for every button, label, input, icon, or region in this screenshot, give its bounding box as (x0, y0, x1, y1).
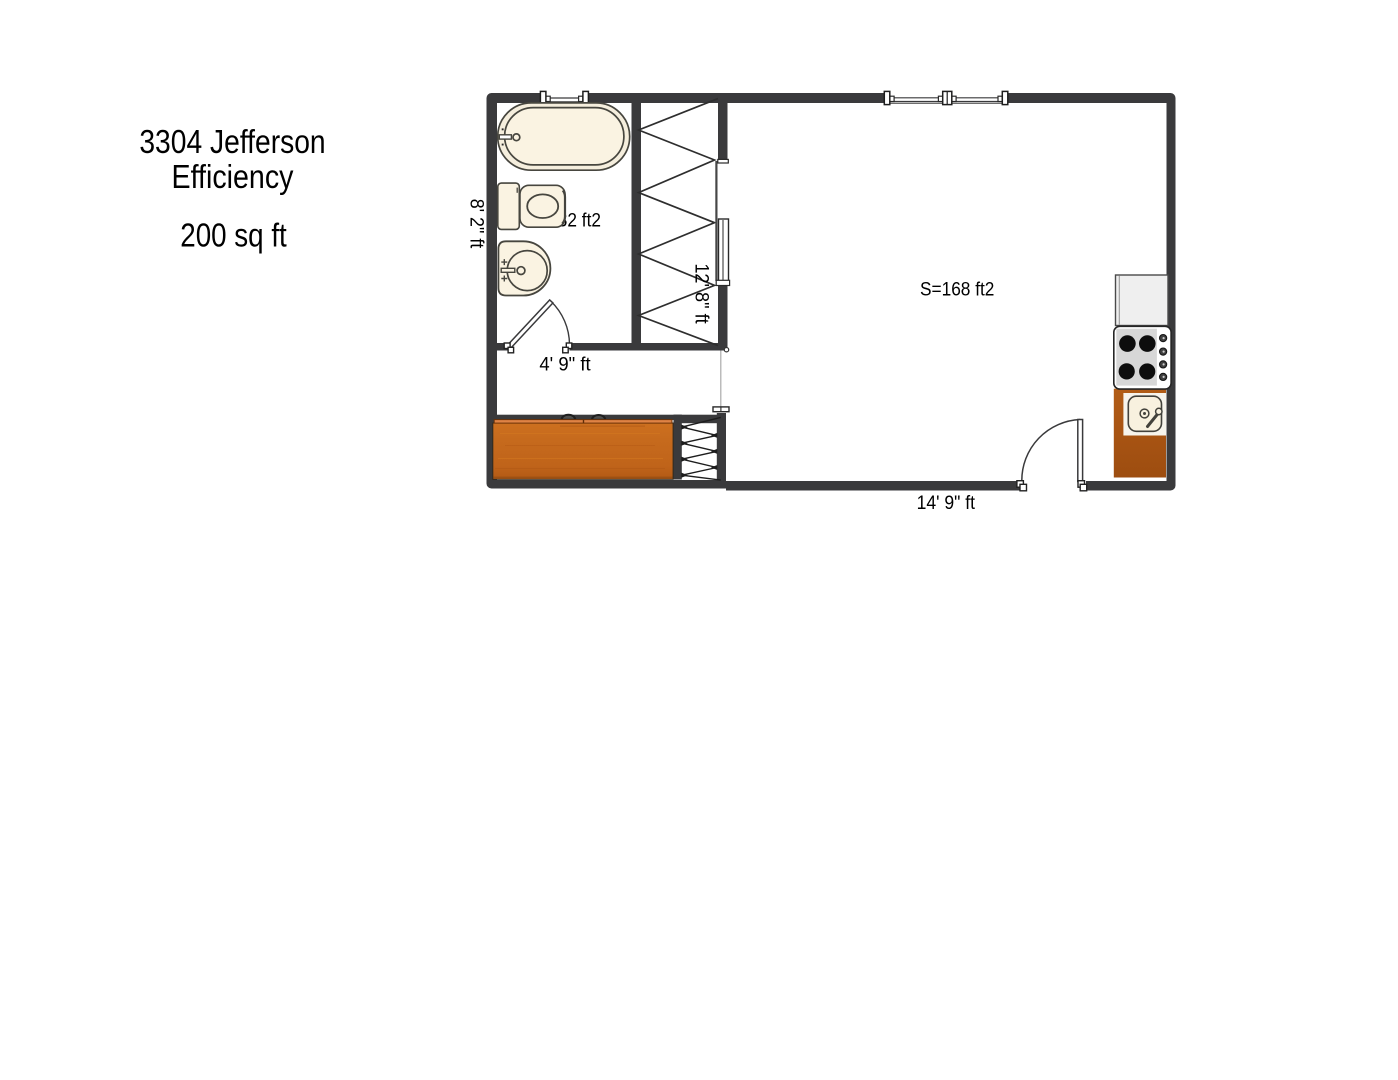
svg-text:14' 9" ft: 14' 9" ft (917, 493, 976, 514)
svg-text:S=168 ft2: S=168 ft2 (920, 280, 994, 301)
svg-text:200 sq ft: 200 sq ft (180, 217, 287, 254)
svg-text:8' 2" ft: 8' 2" ft (466, 199, 487, 249)
svg-text:12' 8" ft: 12' 8" ft (691, 263, 712, 324)
svg-text:3304 Jefferson: 3304 Jefferson (139, 123, 325, 160)
svg-text:Efficiency: Efficiency (172, 158, 294, 195)
svg-text:4' 9" ft: 4' 9" ft (539, 355, 591, 376)
